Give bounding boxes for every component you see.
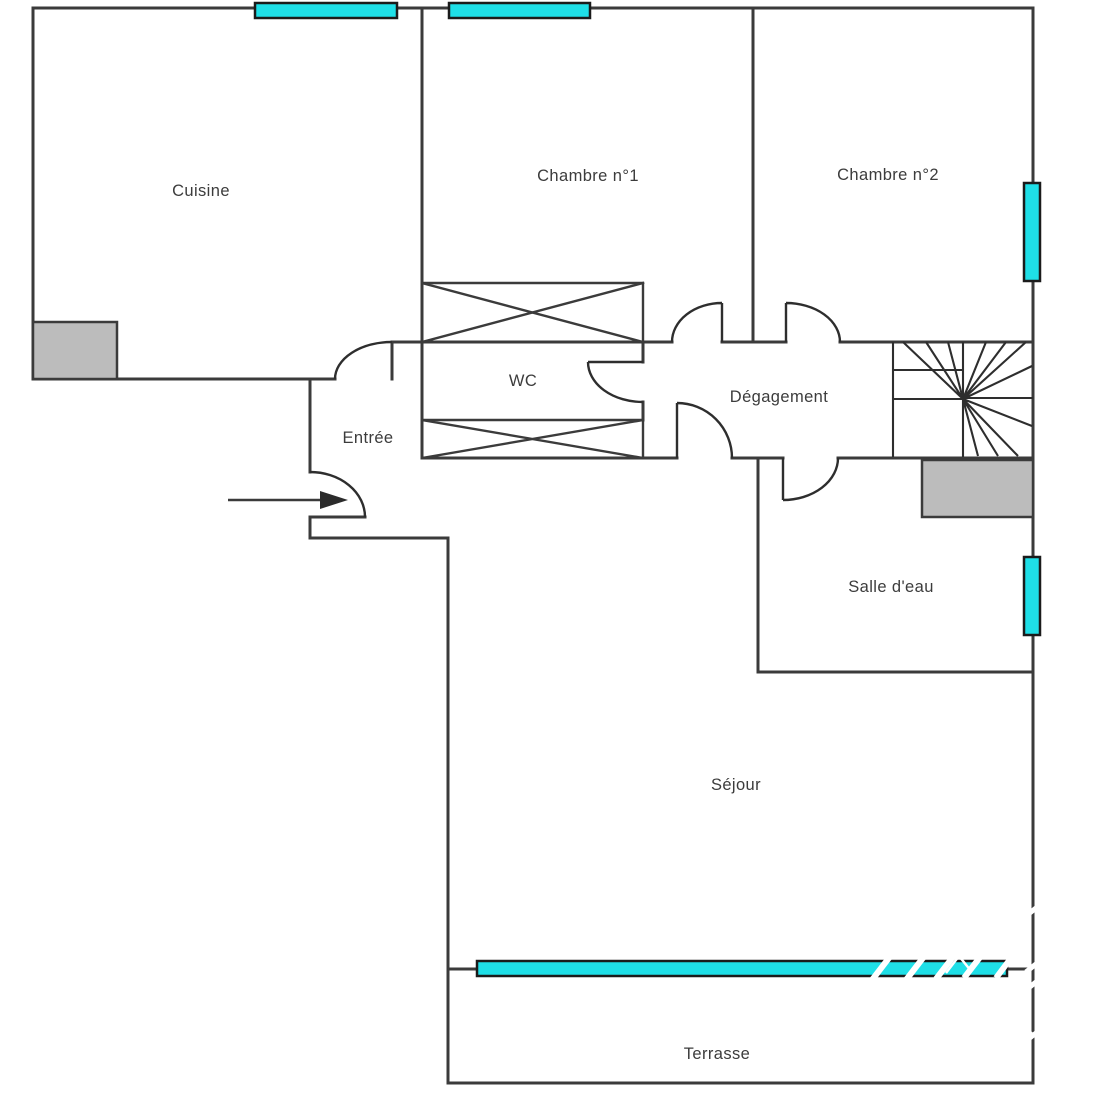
door-arc-salle-eau — [783, 458, 838, 500]
window-cuisine-top — [255, 3, 397, 18]
entrance-arrow-icon — [228, 491, 348, 509]
staircase — [893, 342, 1033, 457]
door-arc-cuisine — [335, 342, 392, 379]
room-label-entree: Entrée — [342, 429, 393, 447]
fixture-stair-block — [922, 460, 1033, 517]
room-label-chambre1: Chambre n°1 — [537, 167, 639, 185]
closet-top — [422, 283, 643, 342]
window-salle-eau-right — [1024, 557, 1040, 635]
floor-plan-page: Cuisine Chambre n°1 Chambre n°2 WC Dégag… — [0, 0, 1100, 1100]
door-arc-chambre2 — [786, 303, 840, 342]
room-label-salle-eau: Salle d'eau — [848, 578, 934, 596]
fixture-cuisine-block — [33, 322, 117, 379]
window-chambre2-right — [1024, 183, 1040, 281]
room-label-degagement: Dégagement — [730, 388, 828, 406]
room-label-chambre2: Chambre n°2 — [837, 166, 939, 184]
room-label-sejour: Séjour — [711, 776, 761, 794]
floor-plan-svg: Cuisine Chambre n°1 Chambre n°2 WC Dégag… — [0, 0, 1100, 1100]
door-arc-chambre1 — [672, 303, 722, 342]
room-label-wc: WC — [509, 372, 537, 390]
room-label-cuisine: Cuisine — [172, 182, 230, 200]
window-chambre1-top — [449, 3, 590, 18]
door-arc-sejour — [677, 403, 732, 458]
door-arc-entrance — [310, 472, 365, 517]
door-arc-wc — [588, 362, 643, 402]
room-label-terrasse: Terrasse — [684, 1045, 750, 1063]
closet-bottom — [422, 420, 643, 458]
window-sejour-bay — [477, 961, 1007, 976]
